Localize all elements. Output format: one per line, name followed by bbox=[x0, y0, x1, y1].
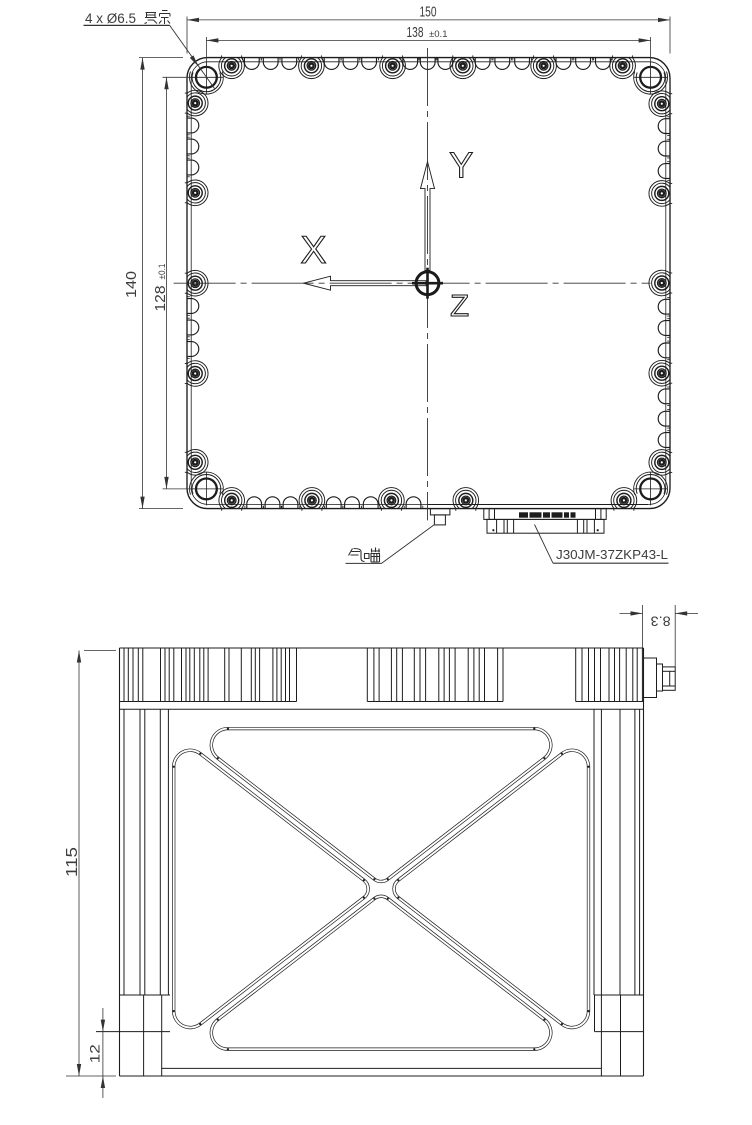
svg-text:138: 138 bbox=[407, 24, 424, 41]
svg-text:±0.1: ±0.1 bbox=[429, 29, 448, 40]
svg-text:12: 12 bbox=[87, 1044, 103, 1063]
svg-text:Z: Z bbox=[450, 288, 469, 323]
svg-text:J30JM-37ZKP43-L: J30JM-37ZKP43-L bbox=[556, 547, 668, 562]
svg-text:115: 115 bbox=[64, 847, 81, 877]
svg-text:4 x Ø6.5: 4 x Ø6.5 bbox=[85, 11, 136, 26]
svg-text:X: X bbox=[300, 229, 326, 272]
svg-text:128: 128 bbox=[152, 286, 169, 312]
svg-text:150: 150 bbox=[420, 4, 437, 21]
svg-text:8.3: 8.3 bbox=[650, 613, 670, 629]
svg-text:Y: Y bbox=[449, 145, 473, 186]
svg-text:140: 140 bbox=[123, 271, 140, 298]
svg-text:±0.1: ±0.1 bbox=[157, 264, 168, 280]
